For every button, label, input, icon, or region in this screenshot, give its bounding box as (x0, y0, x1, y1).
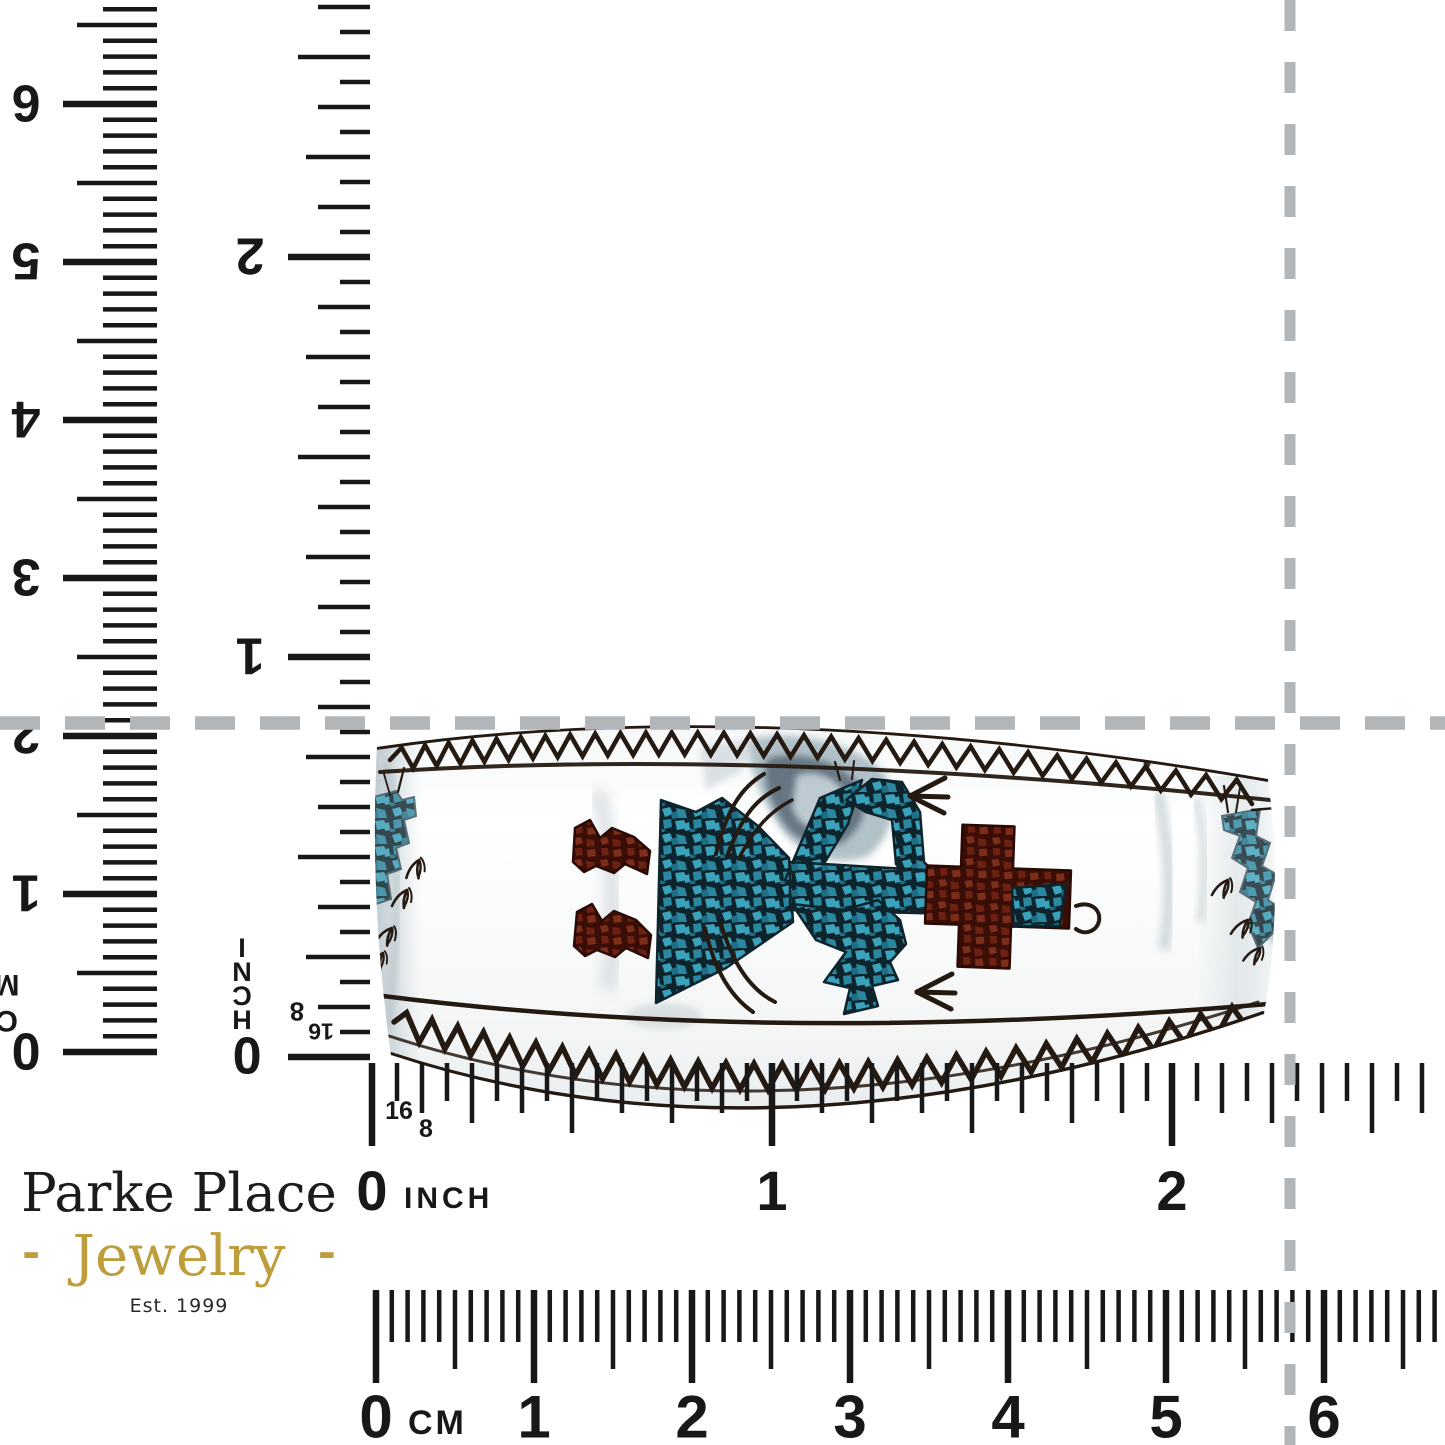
cm-number: 6 (1307, 1384, 1340, 1445)
cm-unit-rotated: C (0, 1004, 18, 1037)
left-cm-ruler: 0123456MC (0, 9, 157, 1079)
brand-subtitle: - Jewelry - (16, 1224, 342, 1289)
brand-established: Est. 1999 (16, 1295, 342, 1317)
figure-hand-wedge (1012, 884, 1066, 926)
cm-number-rotated: 4 (11, 389, 40, 447)
dot-stamp (1144, 761, 1151, 768)
inch-number: 0 (356, 1159, 387, 1222)
brand-name: Parke Place (16, 1166, 342, 1222)
cm-number: 3 (833, 1384, 866, 1445)
inch-number: 1 (756, 1159, 787, 1222)
cm-unit: CM (408, 1404, 467, 1442)
cm-number: 1 (517, 1384, 550, 1445)
product-screenshot: 0123456MC 012INCH816 012INCH168 0123456C… (0, 0, 1445, 1445)
cm-unit-rotated: M (0, 968, 20, 1001)
inch-unit: INCH (404, 1182, 493, 1215)
subtitle-dash-left: - (22, 1227, 40, 1278)
cm-number: 4 (991, 1384, 1025, 1445)
inch-unit-rotated: H (232, 1004, 252, 1034)
subtitle-text: Jewelry (73, 1224, 286, 1289)
subtitle-dash-right: - (318, 1227, 336, 1278)
right-inch-ruler: 012INCH816 (232, 7, 370, 1083)
cm-number: 0 (359, 1384, 392, 1445)
cm-number-rotated: 1 (12, 863, 41, 921)
cm-number: 2 (675, 1384, 708, 1445)
cm-number-rotated: 3 (12, 547, 41, 605)
bottom-cm-ruler: 0123456CM (359, 1290, 1434, 1445)
cm-number: 5 (1149, 1384, 1182, 1445)
inch-number-rotated: 1 (236, 626, 265, 684)
fraction-8: 8 (419, 1115, 433, 1143)
cm-number-rotated: 5 (12, 231, 41, 289)
inch-number: 2 (1156, 1159, 1187, 1222)
fraction-8-rotated: 8 (290, 997, 304, 1027)
fraction-16-rotated: 16 (308, 1019, 334, 1045)
fraction-16: 16 (385, 1097, 413, 1125)
bracelet-photo (370, 725, 1287, 1109)
cm-number-rotated: 2 (12, 705, 41, 763)
brand-logo: Parke Place - Jewelry - Est. 1999 (16, 1166, 342, 1317)
cm-number-rotated: 6 (12, 73, 41, 131)
inch-number-rotated: 2 (236, 226, 265, 284)
